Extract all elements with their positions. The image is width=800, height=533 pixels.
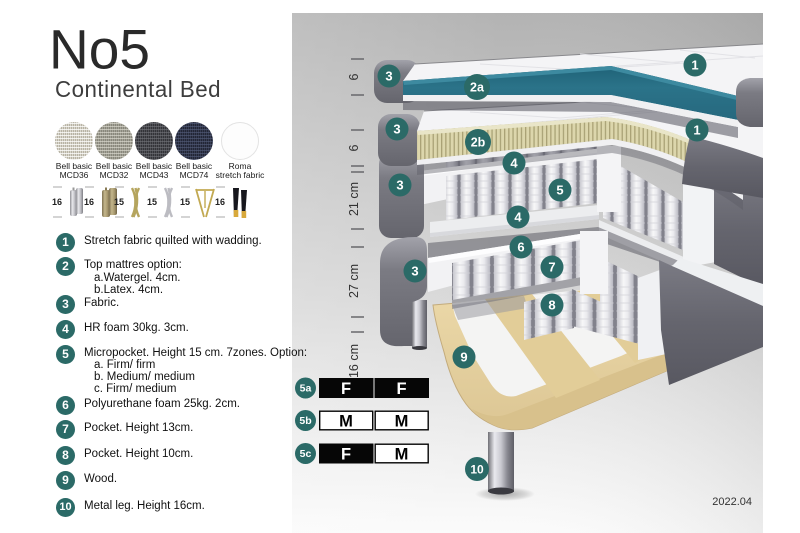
svg-text:F: F [396, 380, 406, 398]
svg-text:5a: 5a [300, 383, 312, 395]
svg-text:9: 9 [460, 350, 467, 365]
svg-text:16 cm: 16 cm [347, 344, 361, 378]
svg-text:15: 15 [147, 197, 157, 207]
svg-text:2b: 2b [471, 136, 486, 150]
svg-text:M: M [395, 446, 409, 464]
svg-text:F: F [341, 380, 351, 398]
svg-text:1: 1 [693, 123, 700, 138]
svg-text:6: 6 [347, 144, 361, 151]
svg-text:2a: 2a [470, 81, 485, 95]
svg-text:16: 16 [215, 197, 225, 207]
svg-text:3: 3 [385, 69, 392, 84]
svg-text:3: 3 [396, 178, 403, 193]
svg-text:2022.04: 2022.04 [712, 496, 752, 508]
svg-text:16: 16 [84, 197, 94, 207]
svg-text:M: M [339, 413, 353, 431]
svg-text:F: F [341, 446, 351, 464]
svg-text:5c: 5c [300, 448, 312, 460]
svg-text:15: 15 [114, 197, 124, 207]
svg-text:1: 1 [691, 58, 698, 73]
svg-text:6: 6 [347, 73, 361, 80]
svg-text:8: 8 [548, 298, 555, 313]
svg-text:21 cm: 21 cm [347, 182, 361, 216]
svg-text:6: 6 [517, 240, 524, 255]
svg-text:3: 3 [411, 264, 418, 279]
svg-text:10: 10 [470, 462, 484, 476]
svg-text:5b: 5b [299, 415, 311, 427]
svg-text:7: 7 [548, 260, 555, 275]
svg-text:4: 4 [510, 156, 518, 171]
svg-text:27 cm: 27 cm [347, 264, 361, 298]
svg-text:15: 15 [180, 197, 190, 207]
svg-text:3: 3 [393, 122, 400, 137]
svg-text:4: 4 [514, 210, 522, 225]
svg-text:M: M [395, 413, 409, 431]
svg-text:16: 16 [52, 197, 62, 207]
svg-text:5: 5 [556, 183, 563, 198]
